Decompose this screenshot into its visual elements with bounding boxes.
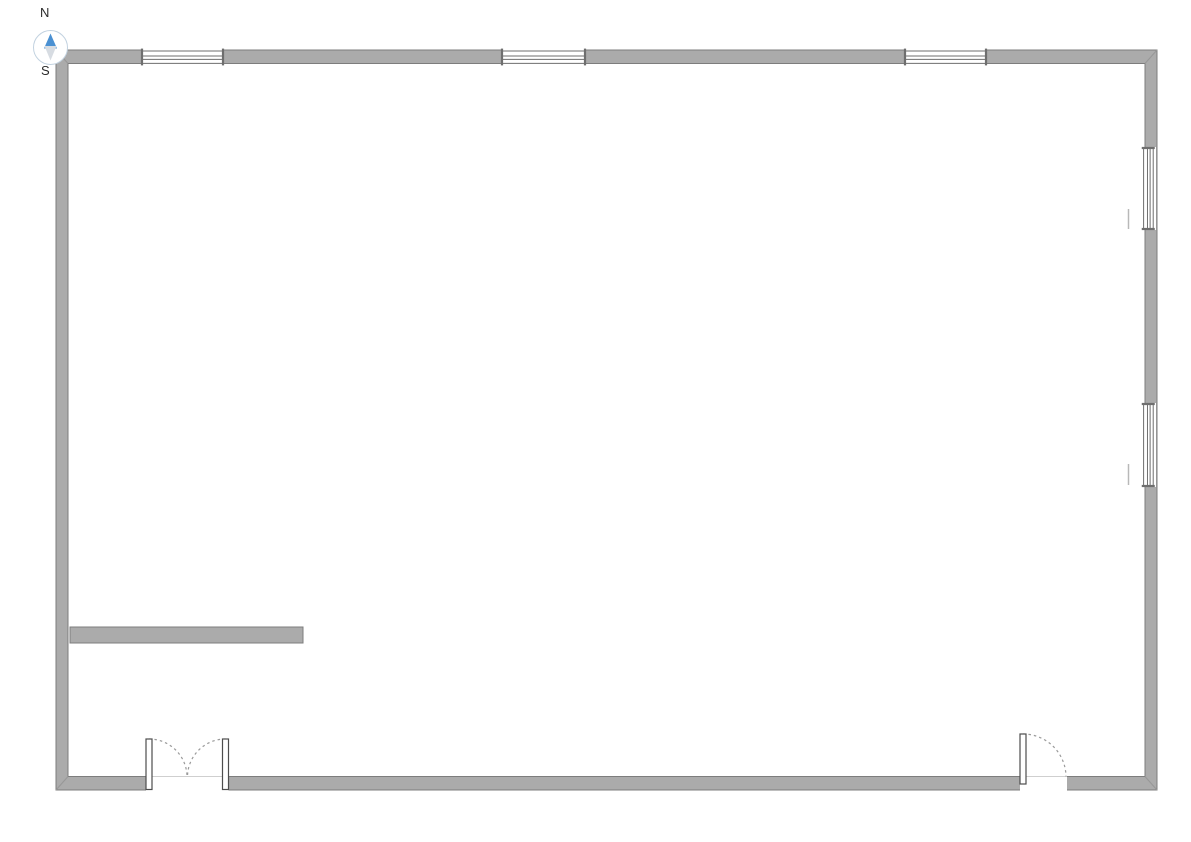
interior-wall-west[interactable] [70, 627, 303, 643]
compass-icon [32, 29, 69, 66]
floorplan-drawing[interactable] [0, 0, 1191, 842]
single-door-south[interactable] [1020, 734, 1067, 791]
window-north-2[interactable] [501, 47, 586, 67]
compass-north-label: N [40, 6, 49, 19]
compass-south-label: S [41, 64, 50, 77]
double-door-south[interactable] [146, 739, 229, 791]
window-east-2[interactable] [1141, 403, 1157, 487]
window-north-3[interactable] [904, 47, 987, 67]
window-east-1[interactable] [1141, 147, 1157, 230]
outer-walls[interactable] [56, 50, 1157, 790]
window-north-1[interactable] [141, 47, 224, 67]
floorplan-canvas[interactable]: N S [0, 0, 1191, 842]
